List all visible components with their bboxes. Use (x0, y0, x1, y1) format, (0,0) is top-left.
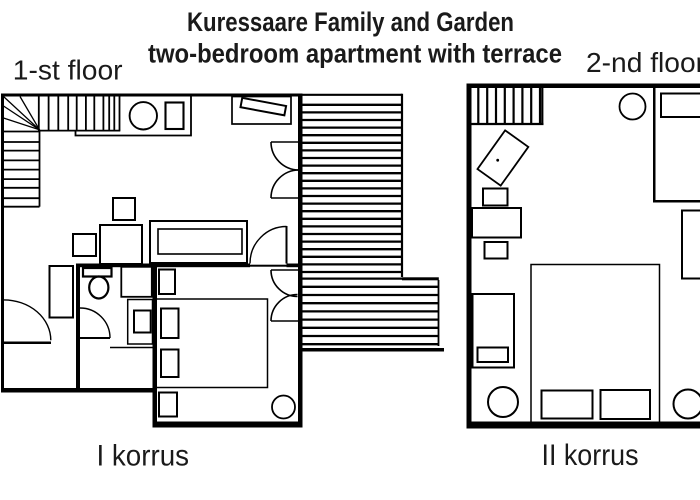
svg-text:Kuressaare Family and Garden: Kuressaare Family and Garden (187, 7, 514, 37)
svg-text:2-nd floor: 2-nd floor (586, 47, 700, 78)
svg-text:I korrus: I korrus (97, 439, 190, 472)
svg-text:two-bedroom apartment with ter: two-bedroom apartment with terrace (148, 39, 562, 69)
svg-text:1-st floor: 1-st floor (13, 55, 123, 86)
svg-text:II korrus: II korrus (542, 439, 639, 472)
